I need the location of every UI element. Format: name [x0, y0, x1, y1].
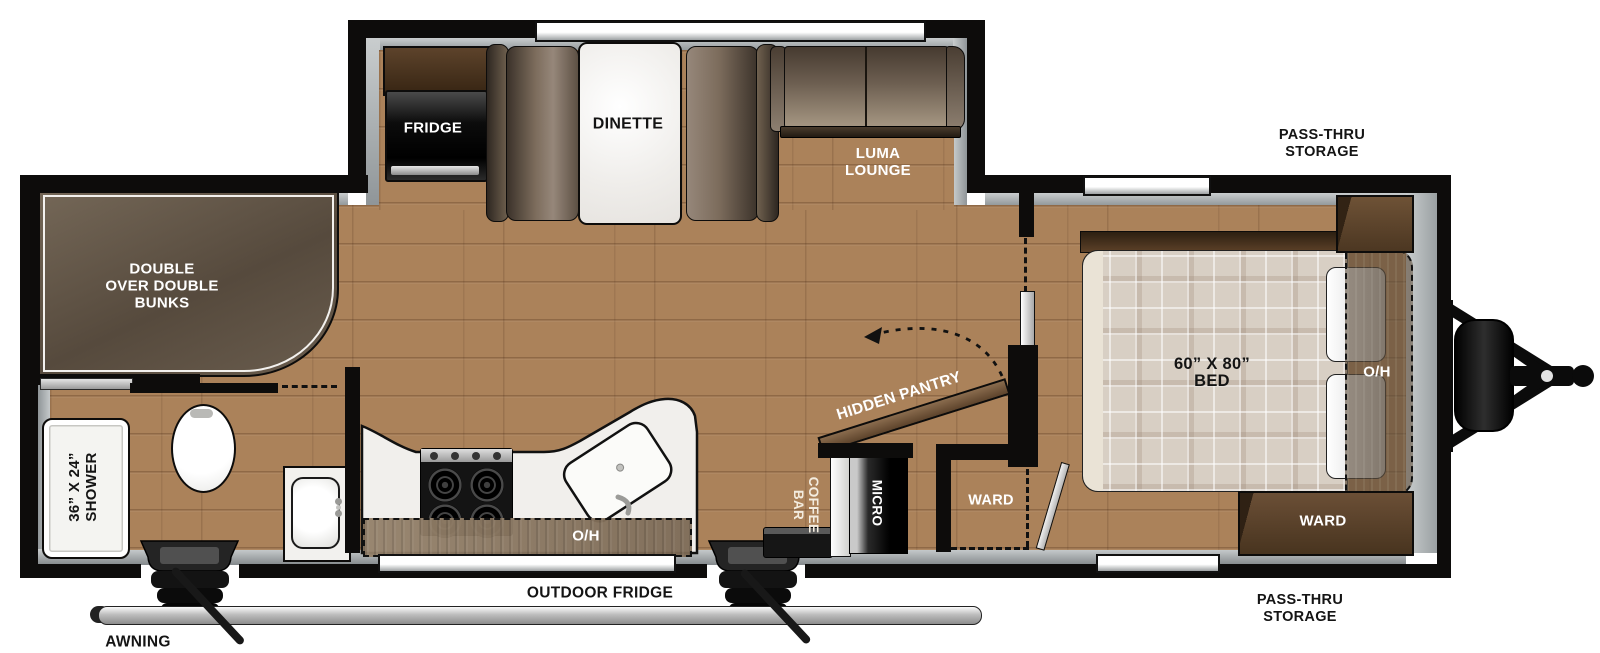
floorplan: FRIDGE DINETTE LUMA LOUNGE DOUBLE OVER D…: [0, 0, 1600, 653]
microwave-side-panel: [830, 456, 851, 557]
bed-overhead-label: O/H: [1363, 364, 1391, 381]
bedroom-top-window: [1083, 176, 1211, 196]
pantry-wall: [818, 443, 913, 458]
hall-ward-label: WARD: [968, 493, 1014, 510]
awning-bar: [98, 606, 982, 625]
lounge-label: LUMA LOUNGE: [845, 145, 911, 179]
bed-ward-label: WARD: [1299, 513, 1346, 530]
pantry-swing-arrowhead: [864, 327, 882, 344]
pantry-swing-arc: [872, 328, 1002, 376]
slide-wall-left: [348, 20, 366, 193]
bathroom-wall-2: [130, 383, 278, 393]
hitch-coupler-tip: [1572, 365, 1594, 387]
hall-ward-wall-left: [936, 459, 951, 552]
pass-thru-storage-bottom-label: PASS-THRU STORAGE: [1257, 592, 1343, 626]
hall-ward-dashed-right: [1026, 460, 1029, 547]
slide-wall-right: [967, 20, 985, 193]
hall-ward-dashed-bottom: [951, 547, 1029, 550]
wall-bottom-1: [20, 564, 141, 578]
kitchen-overhead-cabinet: [363, 518, 692, 557]
dinette-label: DINETTE: [593, 116, 664, 133]
kitchen-bath-wall: [345, 367, 360, 553]
fridge-label: FRIDGE: [404, 120, 462, 137]
bedroom-bottom-window: [1096, 554, 1220, 573]
bedroom-wall-lower: [1008, 345, 1038, 467]
wall-left: [20, 175, 38, 578]
stove-burner: [470, 468, 504, 502]
kitchen-bottom-window: [378, 554, 676, 573]
outdoor-fridge-label: OUTDOOR FRIDGE: [527, 585, 673, 602]
propane-tank: [1455, 320, 1513, 431]
micro-label: MICRO: [869, 480, 886, 527]
wall-top-left: [20, 175, 368, 193]
bed-sheet-band: [1082, 250, 1103, 492]
coffee-bar-label: COFFEE BAR: [791, 477, 821, 534]
pass-thru-storage-top-label: PASS-THRU STORAGE: [1279, 127, 1365, 161]
dinette-window: [535, 21, 926, 42]
bathroom-pocket-door: [40, 378, 133, 390]
stove-burner: [428, 468, 462, 502]
awning-label: AWNING: [105, 634, 171, 651]
stove-knob-panel: [421, 449, 512, 462]
wall-right: [1437, 175, 1451, 578]
bed-label: 60” X 80” BED: [1174, 356, 1250, 390]
entry-step-front: [141, 541, 238, 616]
bedroom-door-opening: [1024, 238, 1027, 292]
hitch: [1444, 300, 1594, 452]
bunks-label: DOUBLE OVER DOUBLE BUNKS: [105, 261, 218, 312]
kitchen-overhead-label: O/H: [572, 528, 600, 545]
shower-label: 36” X 24” SHOWER: [66, 452, 100, 521]
hitch-coupler-hole: [1541, 370, 1553, 382]
nightstand: [1336, 195, 1414, 253]
bathroom-door-opening: [282, 385, 337, 388]
